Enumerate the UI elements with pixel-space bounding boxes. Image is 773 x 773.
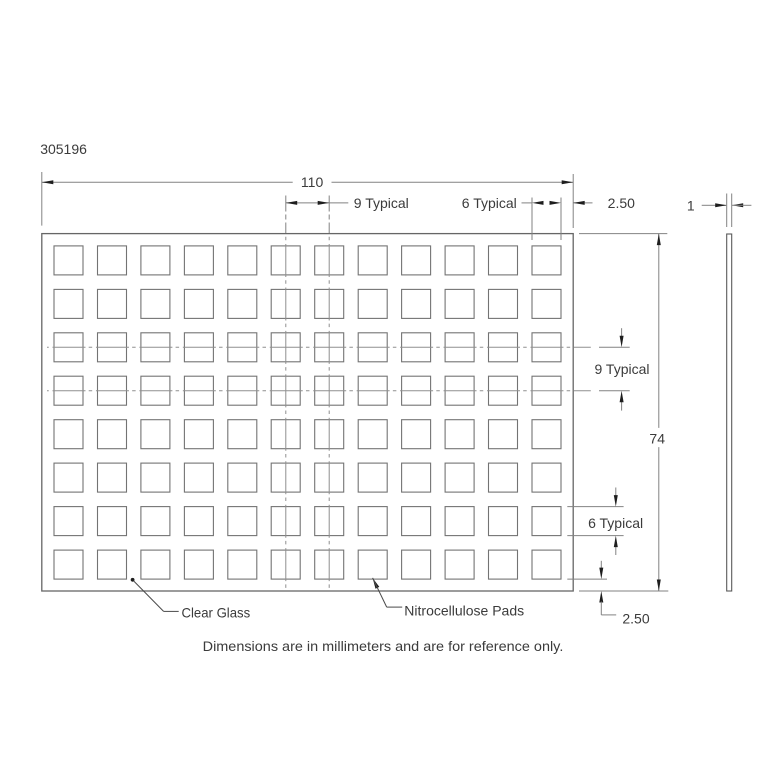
svg-text:6 Typical: 6 Typical — [588, 515, 643, 531]
svg-text:6 Typical: 6 Typical — [462, 195, 517, 211]
svg-text:Dimensions are in millimeters: Dimensions are in millimeters and are fo… — [203, 638, 564, 654]
svg-text:305196: 305196 — [40, 141, 87, 157]
svg-text:Nitrocellulose Pads: Nitrocellulose Pads — [404, 602, 524, 618]
svg-text:2.50: 2.50 — [622, 611, 649, 627]
svg-text:Clear Glass: Clear Glass — [182, 604, 251, 620]
svg-text:74: 74 — [649, 431, 665, 447]
svg-text:9 Typical: 9 Typical — [595, 361, 650, 377]
svg-text:2.50: 2.50 — [608, 195, 635, 211]
svg-text:110: 110 — [301, 174, 324, 190]
svg-text:1: 1 — [687, 197, 695, 213]
svg-text:9 Typical: 9 Typical — [354, 195, 409, 211]
